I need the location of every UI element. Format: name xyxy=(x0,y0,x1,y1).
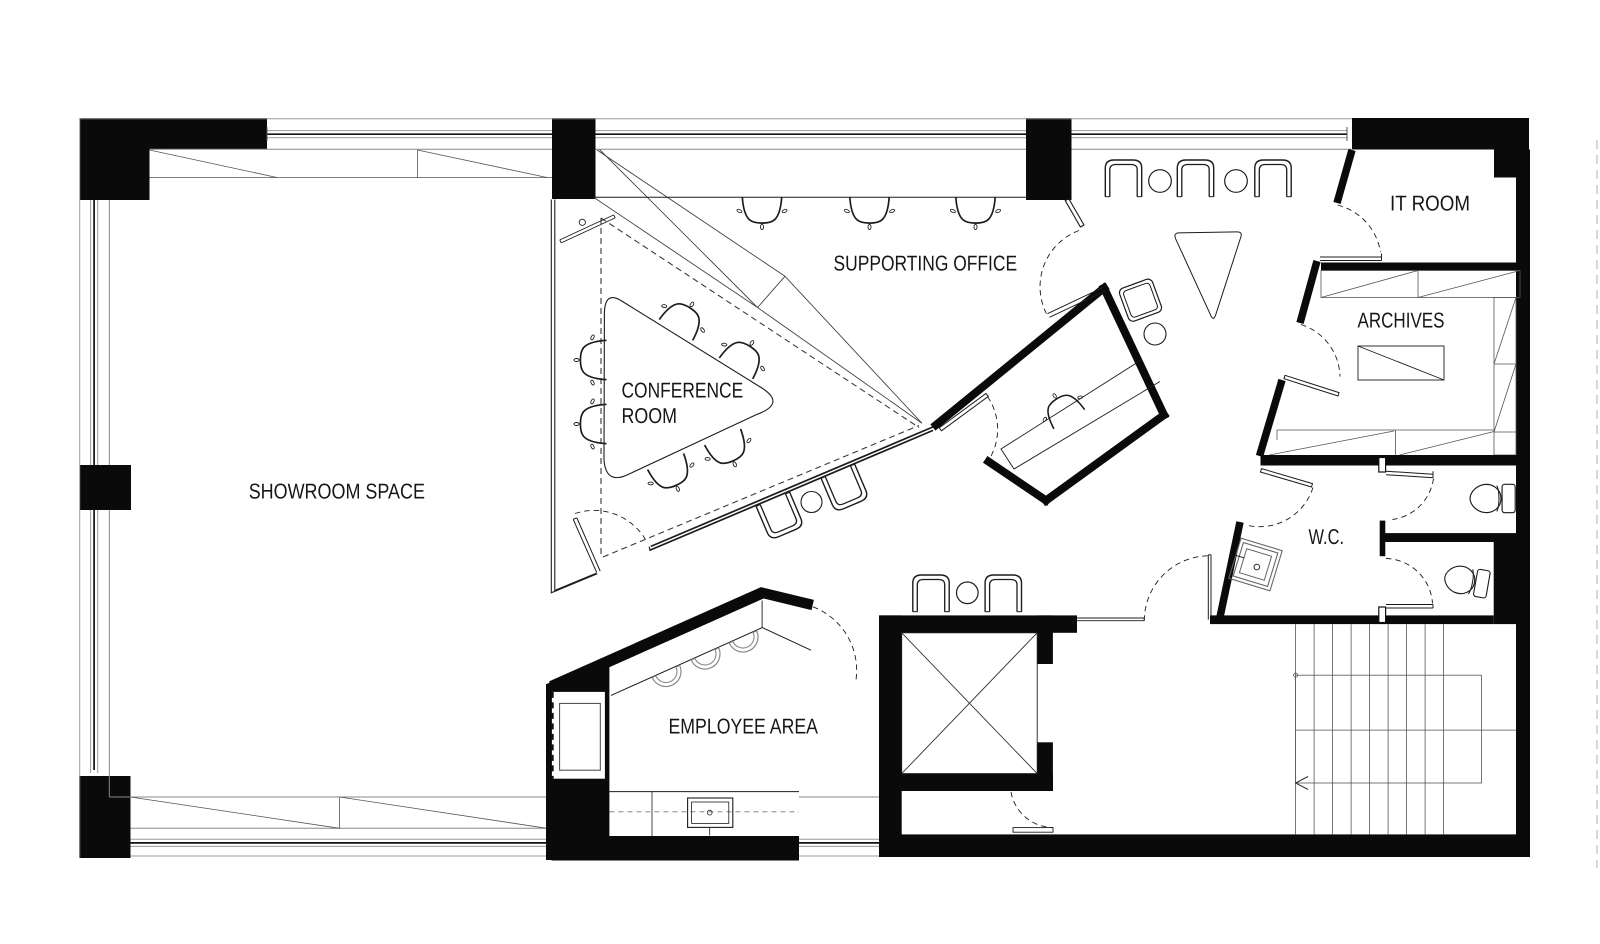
svg-text:ROOM: ROOM xyxy=(622,404,678,428)
svg-text:ARCHIVES: ARCHIVES xyxy=(1358,309,1445,333)
svg-text:SHOWROOM SPACE: SHOWROOM SPACE xyxy=(249,480,425,504)
svg-text:EMPLOYEE AREA: EMPLOYEE AREA xyxy=(669,715,819,739)
svg-text:IT ROOM: IT ROOM xyxy=(1390,192,1470,216)
svg-text:CONFERENCE: CONFERENCE xyxy=(622,379,744,403)
svg-text:W.C.: W.C. xyxy=(1309,525,1345,549)
svg-text:SUPPORTING OFFICE: SUPPORTING OFFICE xyxy=(834,251,1018,275)
